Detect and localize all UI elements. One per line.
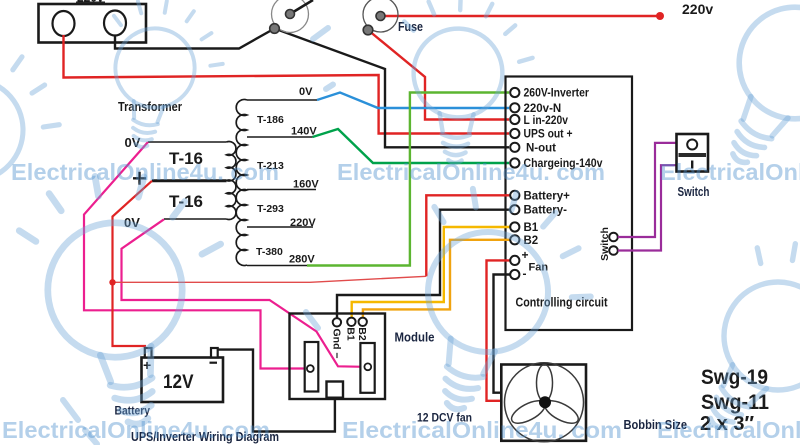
svg-text:12V: 12V: [163, 372, 194, 393]
svg-text:Battery+: Battery+: [524, 190, 571, 202]
svg-text:T-293: T-293: [257, 203, 284, 215]
svg-text:ElectricalOnline4u. com: ElectricalOnline4u. com: [11, 159, 279, 185]
svg-text:T-186: T-186: [257, 114, 284, 126]
svg-text:L in-220v: L in-220v: [524, 115, 569, 127]
svg-text:160V: 160V: [293, 179, 319, 191]
svg-text:ElectricalOnline4u. com: ElectricalOnline4u. com: [657, 417, 800, 443]
svg-text:T-380: T-380: [256, 246, 283, 258]
svg-text:280V: 280V: [289, 254, 315, 266]
svg-text:220V: 220V: [290, 217, 316, 229]
svg-text:B2: B2: [356, 327, 368, 341]
svg-text:Gnd −: Gnd −: [331, 329, 343, 359]
svg-text:Controlling circuit: Controlling circuit: [516, 296, 609, 310]
svg-text:260V-Inverter: 260V-Inverter: [524, 88, 590, 100]
svg-text:0V: 0V: [299, 86, 313, 98]
svg-text:220v-N: 220v-N: [524, 103, 562, 115]
svg-text:B1: B1: [345, 327, 357, 341]
svg-text:UPS out +: UPS out +: [524, 129, 573, 141]
svg-text:B1: B1: [524, 222, 539, 234]
svg-text:Switch: Switch: [599, 227, 611, 261]
svg-text:ElectricalOnline4u. com: ElectricalOnline4u. com: [660, 159, 800, 185]
svg-text:Battery-: Battery-: [524, 205, 568, 217]
svg-text:ElectricalOnline4u. com: ElectricalOnline4u. com: [342, 417, 622, 443]
svg-text:-: -: [523, 267, 527, 281]
svg-text:N-out: N-out: [526, 142, 556, 154]
svg-text:ElectricalOnline4u. com: ElectricalOnline4u. com: [337, 159, 605, 185]
svg-text:220v: 220v: [682, 1, 713, 17]
svg-text:Switch: Switch: [678, 185, 710, 199]
svg-text:ElectricalOnline4u. com: ElectricalOnline4u. com: [2, 417, 270, 443]
svg-text:Module: Module: [395, 331, 435, 345]
